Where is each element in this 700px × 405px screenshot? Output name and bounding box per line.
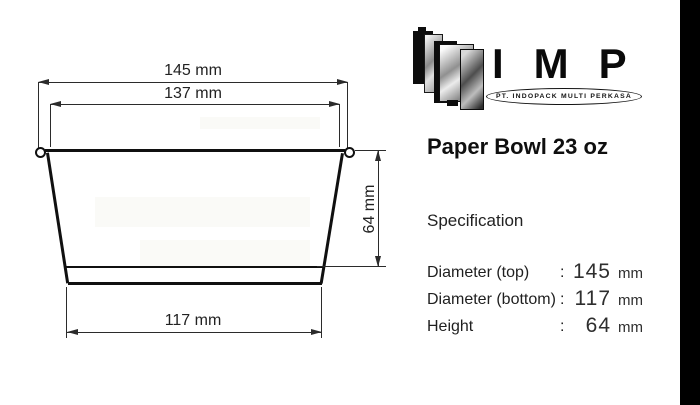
bowl-wall-left	[46, 153, 69, 284]
dimension-label-height: 64 mm	[361, 179, 379, 239]
extension-line	[66, 287, 67, 338]
dimension-line-137	[50, 104, 340, 105]
logo-panels-icon	[460, 49, 484, 110]
spec-row-diameter-top: Diameter (top) : 145 mm	[427, 262, 647, 289]
product-title: Paper Bowl 23 oz	[427, 134, 608, 160]
right-edge-bar	[680, 0, 700, 405]
spec-colon: :	[560, 264, 564, 282]
spec-unit: mm	[618, 319, 643, 336]
bowl-bottom-inner-line	[66, 266, 324, 268]
brand-wordmark: IMP	[492, 40, 657, 88]
extension-line	[317, 266, 386, 267]
bowl-rim-curl-right	[344, 147, 355, 158]
arrowhead-icon	[375, 150, 381, 161]
dimension-label-top-inner: 137 mm	[143, 85, 243, 103]
scan-artifact	[140, 240, 310, 268]
dimension-line-117	[67, 332, 322, 333]
extension-line	[50, 104, 51, 147]
bowl-rim-curl-left	[35, 147, 46, 158]
spec-label: Height	[427, 318, 473, 336]
spec-value: 145	[567, 260, 611, 284]
logo-panels-icon	[447, 100, 458, 106]
dimension-line-145	[38, 82, 348, 83]
extension-line	[355, 150, 386, 151]
bowl-wall-right	[320, 153, 344, 284]
bowl-rim-line	[45, 149, 345, 152]
spec-row-diameter-bottom: Diameter (bottom) : 117 mm	[427, 289, 647, 316]
arrowhead-icon	[50, 101, 61, 107]
extension-line	[321, 287, 322, 338]
scan-artifact	[200, 117, 320, 129]
dimension-line-64	[378, 150, 379, 267]
spec-label: Diameter (bottom)	[427, 291, 556, 309]
specification-heading: Specification	[427, 211, 523, 231]
scan-artifact	[95, 197, 310, 227]
arrowhead-icon	[38, 79, 49, 85]
spec-label: Diameter (top)	[427, 264, 529, 282]
spec-unit: mm	[618, 292, 643, 309]
spec-sheet: 145 mm 137 mm 64 mm 117 mm	[0, 0, 700, 405]
spec-unit: mm	[618, 265, 643, 282]
spec-value: 117	[567, 287, 611, 311]
extension-line	[347, 82, 348, 148]
spec-colon: :	[560, 291, 564, 309]
dimension-label-bottom: 117 mm	[143, 312, 243, 330]
bowl-bottom-outer-line	[68, 282, 322, 285]
spec-row-height: Height : 64 mm	[427, 316, 647, 343]
spec-value: 64	[567, 314, 611, 338]
specification-table: Diameter (top) : 145 mm Diameter (bottom…	[427, 262, 647, 343]
extension-line	[38, 82, 39, 148]
dimension-label-top-outer: 145 mm	[143, 62, 243, 80]
company-name: PT. INDOPACK MULTI PERKASA	[496, 93, 632, 100]
extension-line	[339, 104, 340, 147]
spec-colon: :	[560, 318, 564, 336]
arrowhead-icon	[67, 329, 78, 335]
company-name-badge: PT. INDOPACK MULTI PERKASA	[486, 88, 642, 105]
